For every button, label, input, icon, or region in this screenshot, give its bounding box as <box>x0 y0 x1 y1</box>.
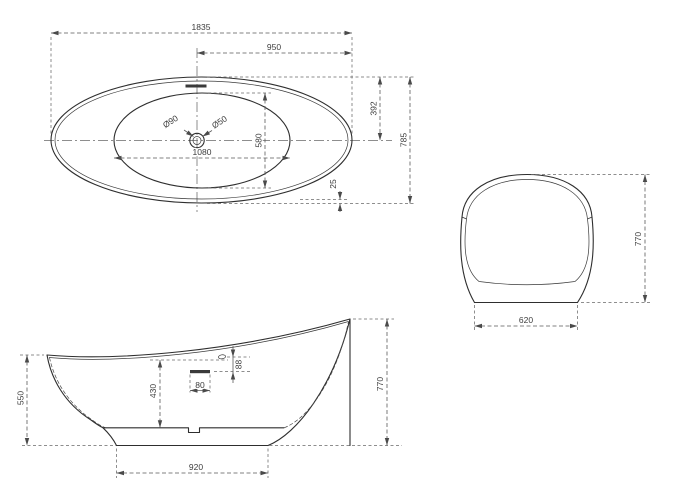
drawing-canvas: 1835 950 392 785 580 1080 25 Ø90 Ø50 <box>0 0 673 500</box>
end-view: 620 770 <box>461 175 651 331</box>
end-left-shell <box>461 217 475 303</box>
side-back-shell <box>268 319 350 446</box>
dim-overall-width-label: 785 <box>399 133 409 147</box>
bathtub-technical-drawing: 1835 950 392 785 580 1080 25 Ø90 Ø50 <box>0 0 673 500</box>
side-back-inner-wall <box>284 322 349 428</box>
drain-outer-dia-label: Ø90 <box>161 113 180 130</box>
dim-base-width-label: 620 <box>519 315 533 325</box>
dim-back-rim-height-label: 770 <box>375 377 385 391</box>
side-view: 550 430 88 80 770 920 <box>16 319 403 478</box>
dim-overall-length-label: 1835 <box>192 22 211 32</box>
rim-overflow-hole <box>218 354 226 359</box>
dim-inner-depth-label: 430 <box>148 384 158 398</box>
side-front-shell <box>47 355 117 446</box>
overflow-slot-side <box>190 370 210 373</box>
end-inner-basin <box>465 219 589 285</box>
dim-rim-lip-label: 25 <box>328 179 338 189</box>
drain-inner-leader <box>203 131 213 137</box>
drain-outer-leader <box>184 130 194 137</box>
side-rim-line <box>47 319 350 357</box>
end-rim-cap-left <box>462 217 467 219</box>
drain-inner-dia-label: Ø50 <box>210 113 229 130</box>
dim-basin-width-label: 580 <box>254 133 264 147</box>
end-right-shell <box>578 217 594 303</box>
dim-overall-height-label: 770 <box>633 232 643 246</box>
dim-top-half-width-label: 392 <box>369 101 379 115</box>
dim-front-rim-height-label: 550 <box>16 391 26 405</box>
top-view: 1835 950 392 785 580 1080 25 Ø90 Ø50 <box>44 22 415 212</box>
dim-basin-length-label: 1080 <box>193 147 212 157</box>
outer-rim-ellipse <box>51 77 352 203</box>
overflow-slot-top <box>186 85 207 88</box>
end-rim-outer-arc <box>462 175 592 218</box>
dim-overflow-offset-label: 88 <box>234 360 244 370</box>
inner-rim-ellipse <box>55 81 348 199</box>
dim-base-length-label: 920 <box>189 462 203 472</box>
dim-right-half-length-label: 950 <box>267 42 281 52</box>
side-front-inner-wall <box>50 358 106 428</box>
dim-overflow-length-label: 80 <box>195 380 205 390</box>
side-rim-inner-line <box>49 322 349 360</box>
side-floor-line <box>103 428 284 433</box>
end-rim-cap-right <box>588 217 593 219</box>
end-rim-inner-arc <box>467 180 588 220</box>
